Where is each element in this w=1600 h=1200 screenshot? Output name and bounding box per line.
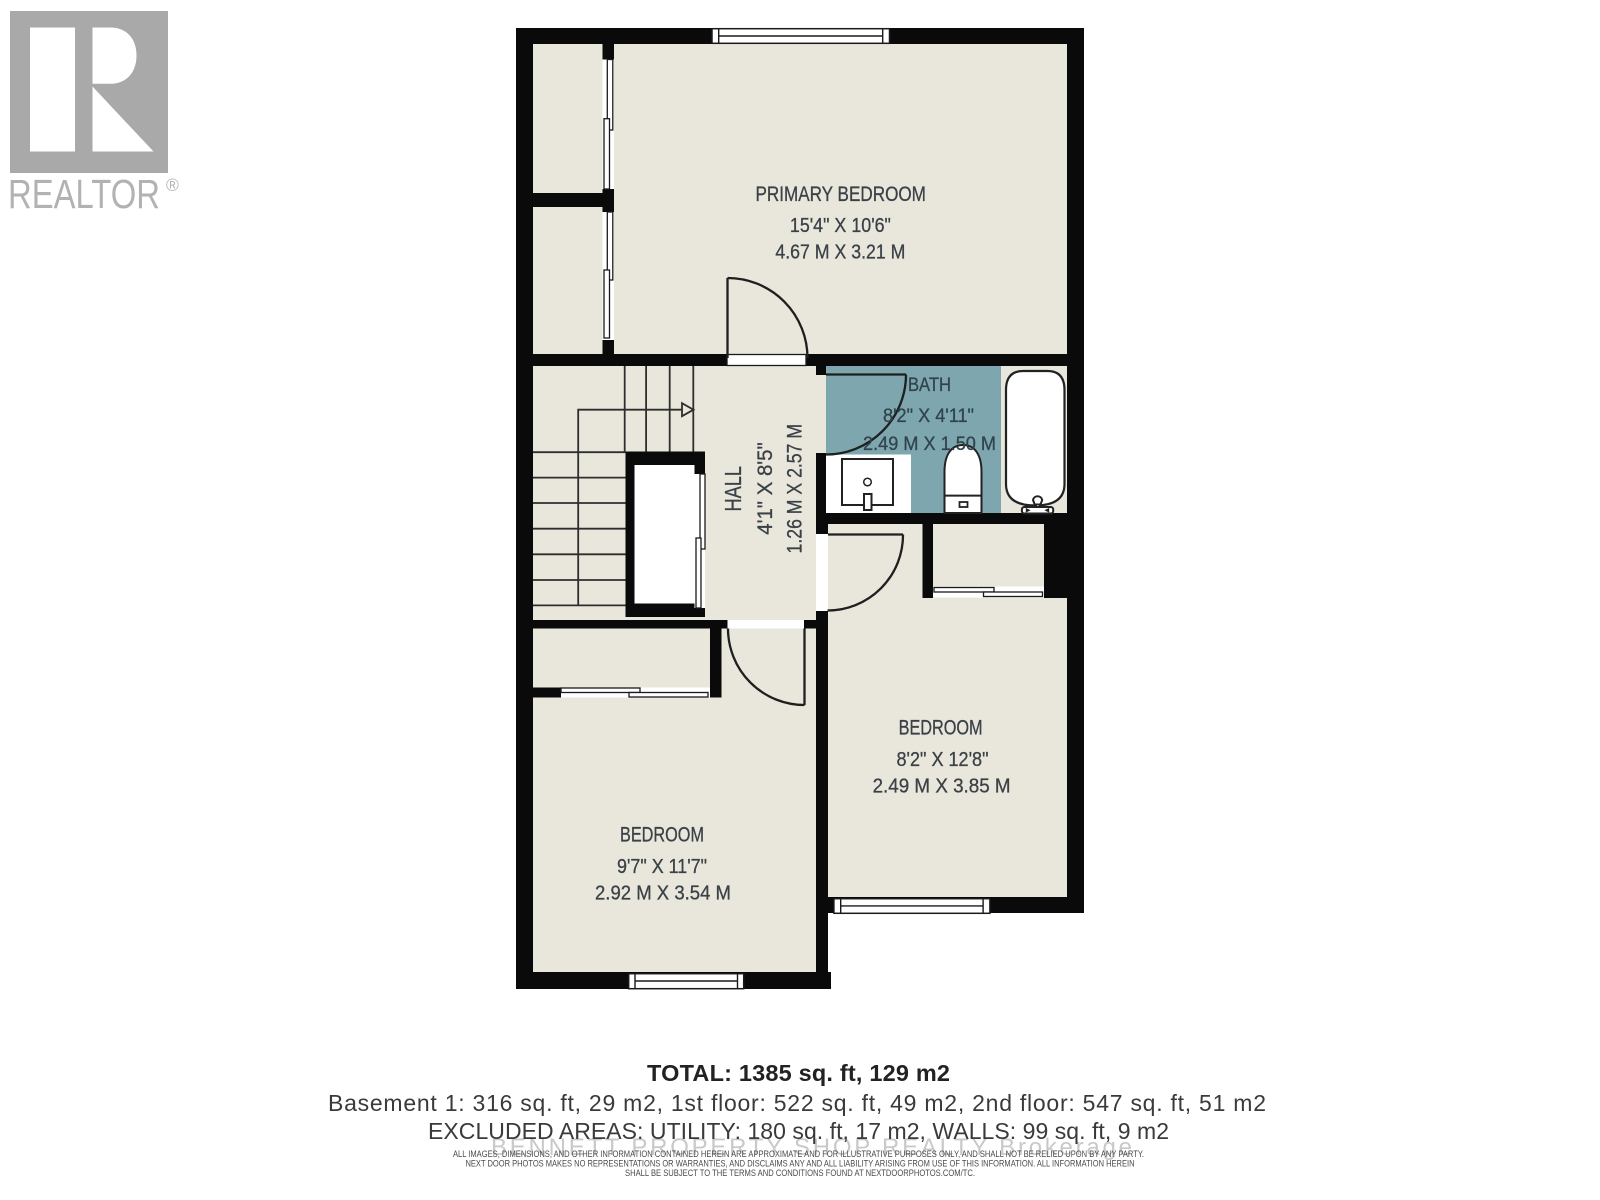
svg-text:8'2" X 12'8": 8'2" X 12'8": [897, 748, 989, 771]
svg-text:9'7" X 11'7": 9'7" X 11'7": [617, 855, 707, 878]
svg-text:15'4" X 10'6": 15'4" X 10'6": [790, 214, 891, 237]
svg-text:8'2" X 4'11": 8'2" X 4'11": [883, 405, 974, 427]
svg-text:4'1" X 8'5": 4'1" X 8'5": [754, 442, 777, 535]
svg-text:ALL IMAGES, DIMENSIONS, AND OT: ALL IMAGES, DIMENSIONS, AND OTHER INFORM…: [453, 1149, 1144, 1159]
svg-text:1.26 M X 2.57 M: 1.26 M X 2.57 M: [784, 424, 807, 554]
svg-text:2.49 M X 1.50 M: 2.49 M X 1.50 M: [863, 433, 996, 455]
svg-text:PRIMARY BEDROOM: PRIMARY BEDROOM: [755, 182, 926, 206]
svg-text:BEDROOM: BEDROOM: [620, 822, 704, 846]
svg-text:BEDROOM: BEDROOM: [899, 716, 983, 740]
svg-text:2.92 M X 3.54 M: 2.92 M X 3.54 M: [595, 882, 731, 905]
svg-text:BATH: BATH: [908, 375, 951, 396]
svg-text:SHALL BE SUBJECT TO THE TERMS: SHALL BE SUBJECT TO THE TERMS AND CONDIT…: [625, 1168, 975, 1178]
svg-text:®: ®: [166, 175, 179, 195]
svg-text:Basement 1: 316 sq. ft, 29 m2,: Basement 1: 316 sq. ft, 29 m2, 1st floor…: [328, 1090, 1266, 1116]
svg-text:2.49 M X 3.85 M: 2.49 M X 3.85 M: [873, 775, 1011, 798]
svg-text:NEXT DOOR PHOTOS MAKES NO REPR: NEXT DOOR PHOTOS MAKES NO REPRESENTATION…: [466, 1159, 1135, 1169]
svg-text:TOTAL: 1385 sq. ft, 129 m2: TOTAL: 1385 sq. ft, 129 m2: [647, 1060, 950, 1086]
svg-text:HALL: HALL: [720, 466, 746, 512]
svg-text:REALTOR: REALTOR: [8, 171, 160, 217]
svg-text:EXCLUDED AREAS: UTILITY: 180 s: EXCLUDED AREAS: UTILITY: 180 sq. ft, 17 …: [428, 1118, 1169, 1144]
svg-text:4.67 M X 3.21 M: 4.67 M X 3.21 M: [775, 241, 905, 264]
